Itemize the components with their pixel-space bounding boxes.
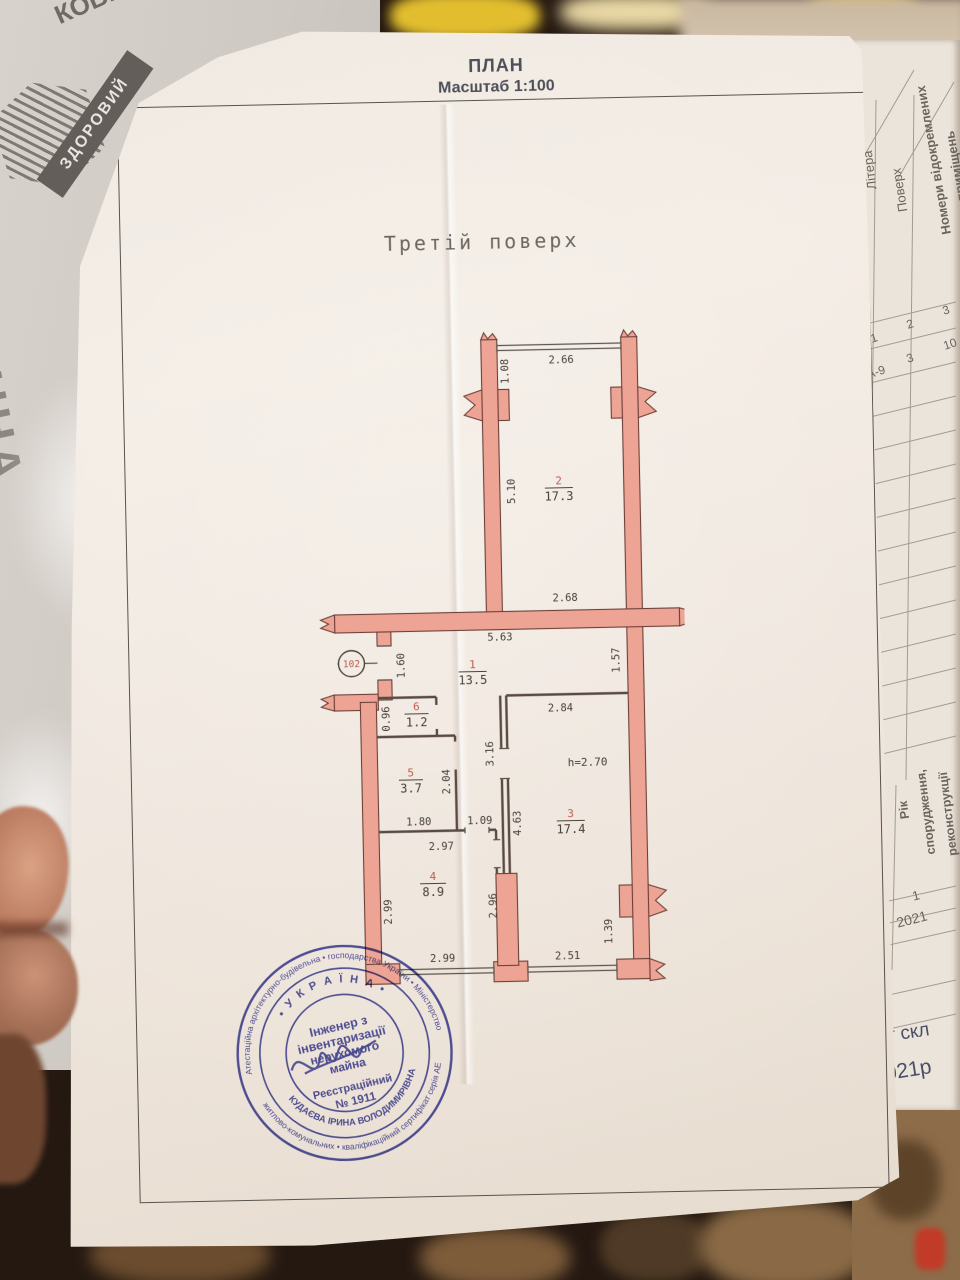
room-5-number: 5 bbox=[407, 766, 414, 779]
room-2-number: 2 bbox=[555, 474, 562, 487]
room-2-area: 17.3 bbox=[544, 489, 573, 504]
room-3-number: 3 bbox=[567, 807, 574, 820]
dim-2-66: 2.66 bbox=[548, 354, 574, 367]
stamp-texts: Атестаційна архітектурно-будівельна • го… bbox=[221, 929, 467, 1172]
room-6-area: 1.2 bbox=[406, 715, 428, 729]
dim-2-04: 2.04 bbox=[441, 769, 454, 795]
year-label-2: спорудження, bbox=[914, 769, 938, 856]
room-3-area: 17.4 bbox=[556, 822, 585, 837]
dim-2-84: 2.84 bbox=[548, 702, 574, 715]
dim-5-10: 5.10 bbox=[506, 479, 519, 505]
room-1-area: 13.5 bbox=[458, 673, 487, 688]
dim-1-60: 1.60 bbox=[395, 653, 408, 679]
year-label-1: Рік bbox=[896, 799, 912, 819]
carpet-blob bbox=[420, 1228, 570, 1280]
row-index-3: 3 bbox=[941, 302, 952, 317]
red-object bbox=[915, 1228, 945, 1270]
dim-2-51: 2.51 bbox=[555, 950, 581, 963]
col-poverh-label: Поверх bbox=[889, 167, 911, 213]
finger-crease bbox=[0, 922, 68, 936]
photo-scene: ЗДОРОВИЙ РОДИННА КОВБАСКИ Літера bbox=[0, 0, 960, 1280]
dim-2-97: 2.97 bbox=[429, 841, 455, 854]
bag-brand-text-2: КОВБАСКИ bbox=[50, 0, 194, 31]
dim-1-80: 1.80 bbox=[406, 816, 432, 829]
paper-sheet: ПЛАН Масштаб 1:100 Третій поверх bbox=[0, 0, 960, 1280]
dim-1-39: 1.39 bbox=[603, 919, 616, 945]
floor-plan: 102 1.08 2.66 5.10 2.68 5.63 1.60 1.57 2… bbox=[309, 328, 693, 1006]
room-6-number: 6 bbox=[413, 700, 420, 713]
dim-3-16: 3.16 bbox=[484, 741, 497, 767]
room-4-area: 8.9 bbox=[422, 885, 444, 899]
dim-1-09: 1.09 bbox=[467, 815, 493, 828]
entry-number: 102 bbox=[343, 659, 360, 670]
carpet-blob bbox=[600, 1212, 710, 1280]
room-height-note: h=2.70 bbox=[568, 755, 608, 769]
row-value-nomery: 10 bbox=[941, 335, 958, 353]
dim-1-57: 1.57 bbox=[610, 647, 623, 673]
row-index-2: 2 bbox=[905, 316, 916, 331]
dim-2-68: 2.68 bbox=[552, 592, 578, 605]
dim-4-63: 4.63 bbox=[512, 810, 525, 836]
dim-0-96: 0.96 bbox=[380, 706, 393, 732]
dim-5-63: 5.63 bbox=[487, 631, 513, 644]
year-value: 2021 bbox=[895, 907, 929, 930]
room-4-number: 4 bbox=[429, 870, 436, 883]
room-1-number: 1 bbox=[469, 658, 476, 671]
year-index: 1 bbox=[911, 887, 922, 903]
room-5-area: 3.7 bbox=[400, 781, 422, 795]
dim-1-08: 1.08 bbox=[499, 359, 512, 385]
year-label-3: реконструкції bbox=[936, 771, 960, 857]
dim-2-99-left: 2.99 bbox=[382, 899, 395, 925]
carpet-blob bbox=[700, 1200, 870, 1280]
dim-2-96: 2.96 bbox=[487, 893, 500, 919]
row-value-poverh: 3 bbox=[905, 350, 916, 365]
plan-walls bbox=[314, 329, 693, 988]
